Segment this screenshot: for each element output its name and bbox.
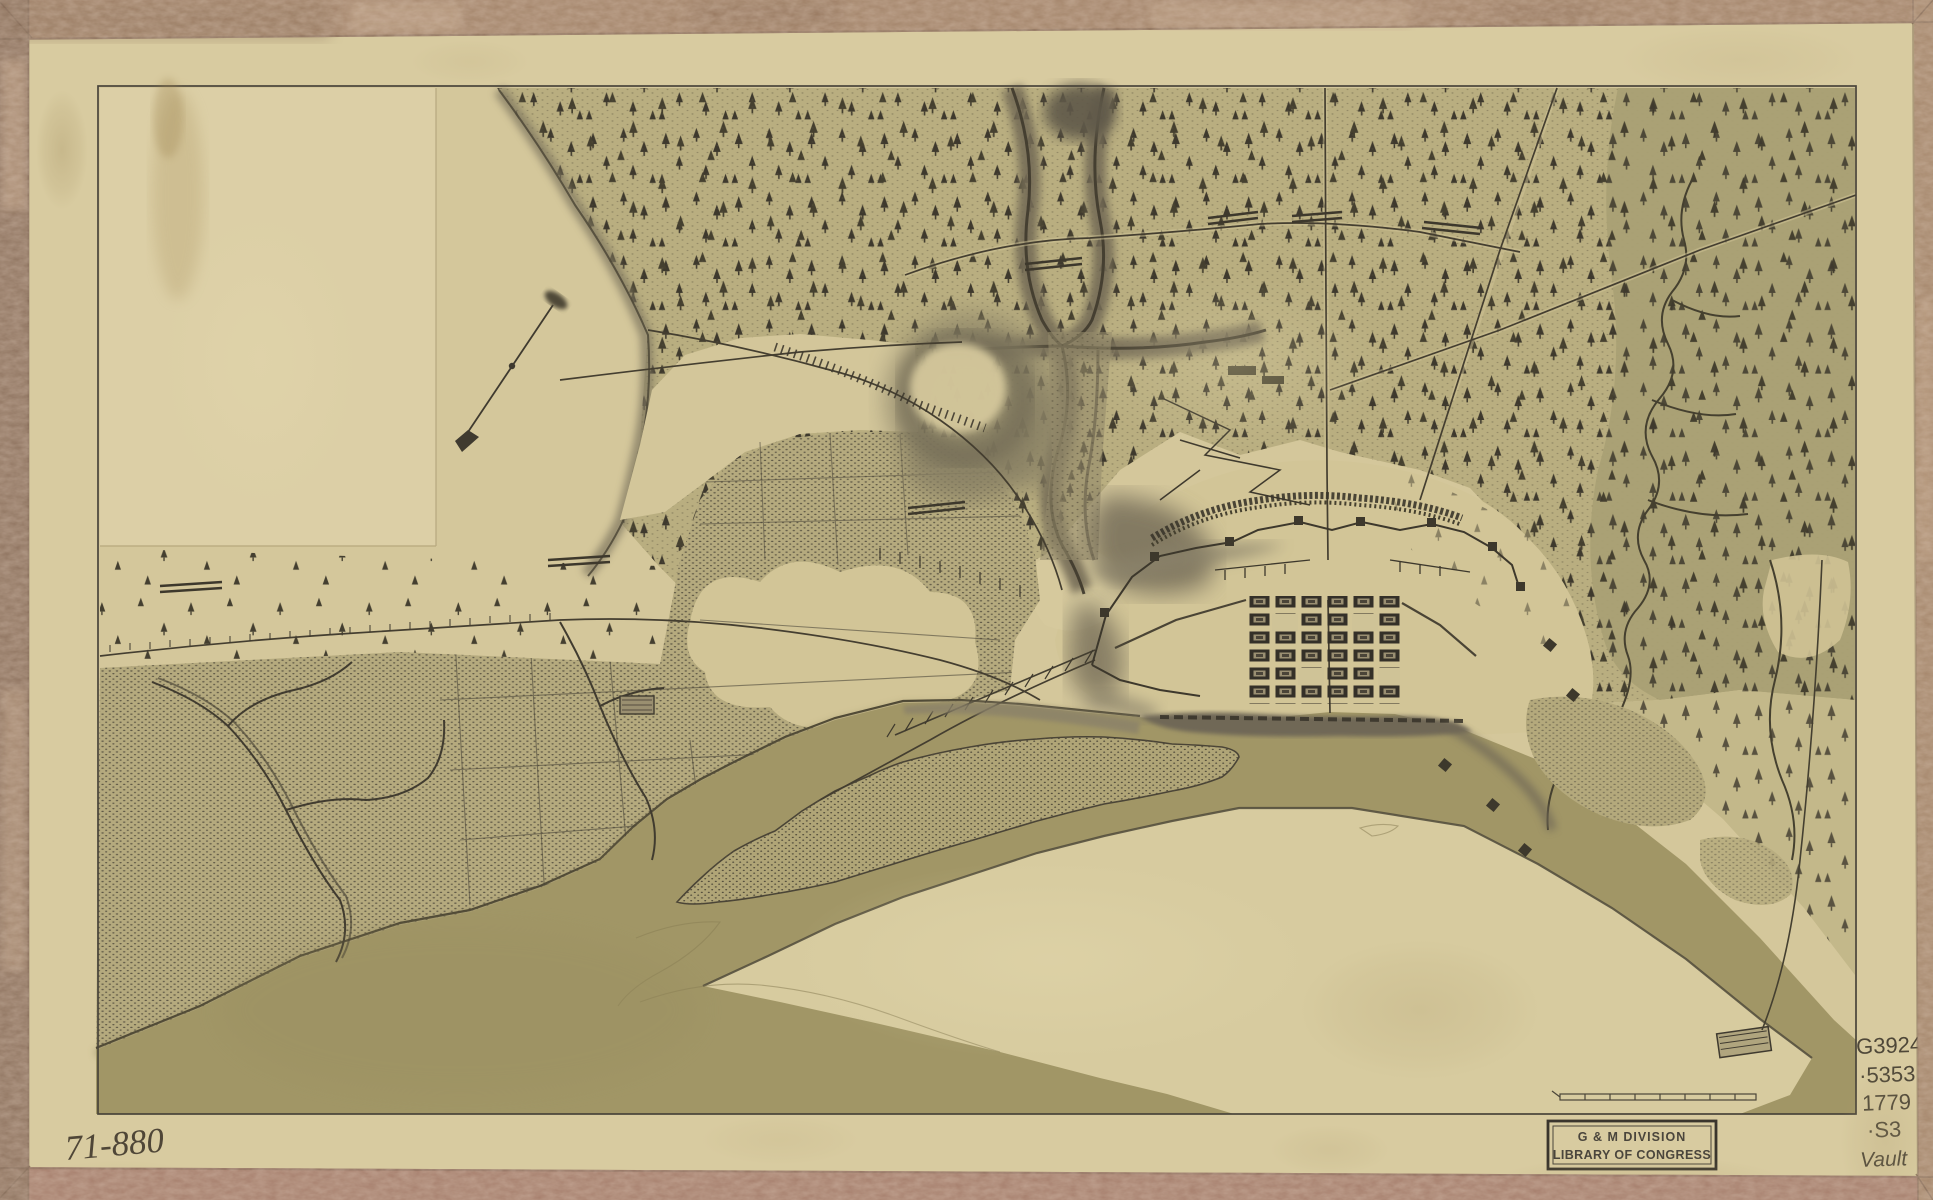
svg-text:G3924: G3924 [1856,1032,1923,1059]
svg-text:G & M DIVISION: G & M DIVISION [1578,1130,1686,1144]
